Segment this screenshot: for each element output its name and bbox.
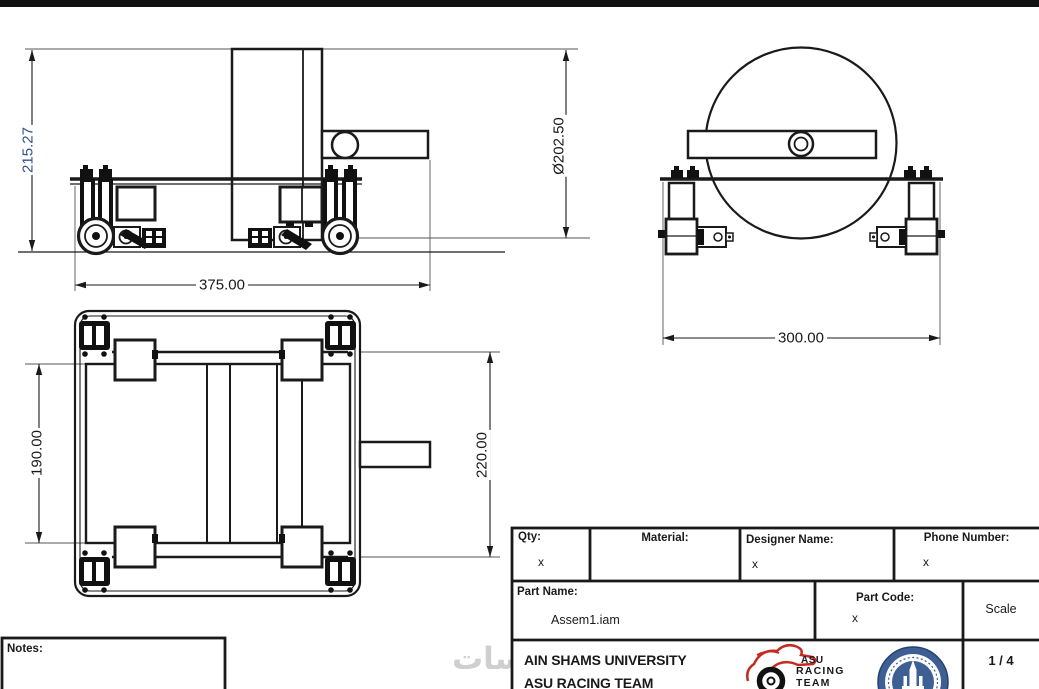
- cad-drawing-sheet: خمسات: [0, 0, 1039, 689]
- dimension-wheel-diameter: Ø202.50: [551, 115, 568, 177]
- organization-line1: AIN SHAMS UNIVERSITY: [524, 652, 686, 668]
- phone-number-label: Phone Number:: [894, 532, 1039, 544]
- part-name-label: Part Name:: [517, 586, 578, 598]
- racing-logo-text-team: TEAM: [796, 677, 831, 689]
- text-layer: 215.27 Ø202.50 375.00 300.00 190.00 220.…: [0, 0, 1039, 689]
- designer-name-label: Designer Name:: [746, 534, 834, 546]
- material-label: Material:: [590, 532, 740, 544]
- dimension-base-width: 375.00: [196, 277, 248, 294]
- part-name-value: Assem1.iam: [551, 613, 620, 627]
- dimension-overall-length: 220.00: [474, 430, 491, 480]
- phone-number-value: x: [923, 555, 929, 569]
- scale-value: 1 / 4: [963, 653, 1039, 668]
- scale-label: Scale: [963, 602, 1039, 616]
- organization-line2: ASU RACING TEAM: [524, 675, 653, 689]
- dimension-side-height: 215.27: [20, 125, 37, 175]
- qty-label: Qty:: [518, 531, 541, 543]
- notes-label: Notes:: [7, 643, 43, 655]
- part-code-value: x: [852, 611, 858, 625]
- designer-name-value: x: [752, 557, 758, 571]
- dimension-track-width: 300.00: [775, 330, 827, 347]
- dimension-frame-length: 190.00: [29, 428, 46, 478]
- racing-logo-text-racing: RACING: [796, 665, 845, 677]
- qty-value: x: [538, 555, 544, 569]
- part-code-label: Part Code:: [856, 592, 914, 604]
